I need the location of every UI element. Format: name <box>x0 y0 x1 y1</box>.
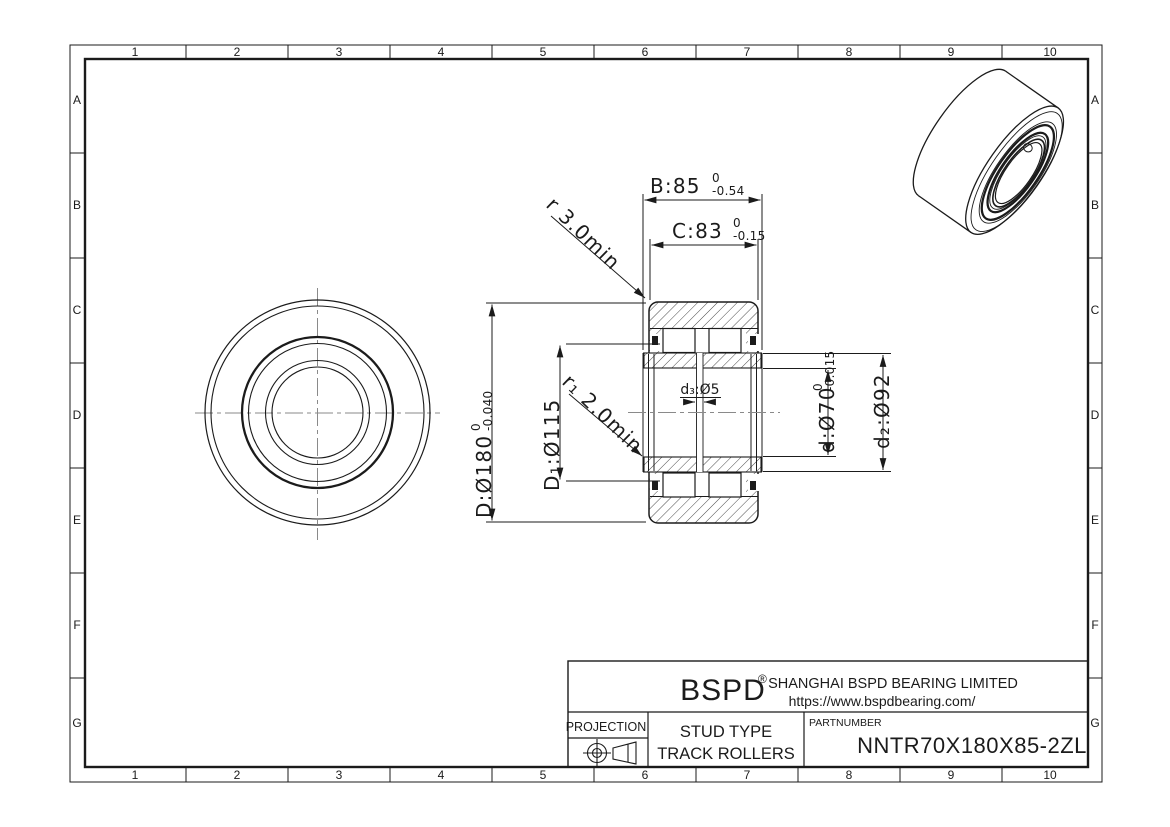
company-name: SHANGHAI BSPD BEARING LIMITED <box>768 676 1018 692</box>
dim-r1: r₁ 2.0min <box>558 369 649 458</box>
front-view-centerlines <box>195 288 440 540</box>
grid-row-left: A <box>73 93 81 107</box>
grid-col-top: 10 <box>1043 45 1057 59</box>
grid-row-left: F <box>73 618 80 632</box>
grid-row-right: F <box>1091 618 1098 632</box>
grid-row-right: D <box>1091 408 1100 422</box>
grid-col-bottom: 5 <box>540 768 547 782</box>
grid-col-top: 6 <box>642 45 649 59</box>
grid-row-left: B <box>73 198 81 212</box>
grid-col-bottom: 2 <box>234 768 241 782</box>
grid-col-top: 9 <box>948 45 955 59</box>
grid-col-top: 5 <box>540 45 547 59</box>
product-type-line2: TRACK ROLLERS <box>657 745 795 763</box>
company-url: https://www.bspdbearing.com/ <box>789 693 976 709</box>
dim-D1: D₁:Ø115 <box>540 399 564 491</box>
grid-col-bottom: 9 <box>948 768 955 782</box>
grid-col-bottom: 3 <box>336 768 343 782</box>
grid-col-bottom: 6 <box>642 768 649 782</box>
grid-row-right: B <box>1091 198 1099 212</box>
grid-row-right: E <box>1091 513 1099 527</box>
dim-D-tol-bottom: -0.040 <box>481 391 495 431</box>
dim-d3: d₃:Ø5 <box>680 382 719 398</box>
grid-col-bottom: 7 <box>744 768 751 782</box>
grid-row-right: A <box>1091 93 1099 107</box>
projection-symbol-icon <box>583 739 636 767</box>
grid-row-left: C <box>73 303 82 317</box>
partnumber-label: PARTNUMBER <box>809 717 882 729</box>
dim-d-tol-bottom: -0.015 <box>823 351 837 391</box>
grid-col-bottom: 4 <box>438 768 445 782</box>
registered-mark: ® <box>758 672 767 686</box>
grid-col-top: 7 <box>744 45 751 59</box>
grid-row-right: G <box>1090 716 1099 730</box>
grid-col-top: 1 <box>132 45 139 59</box>
title-block: BSPD ® SHANGHAI BSPD BEARING LIMITED htt… <box>566 661 1088 767</box>
grid-col-bottom: 10 <box>1043 768 1057 782</box>
grid-col-top: 3 <box>336 45 343 59</box>
section-view <box>628 302 780 523</box>
dim-D: D:Ø180 <box>472 435 496 518</box>
dim-d2: d₂:Ø92 <box>870 373 894 449</box>
front-view <box>195 288 440 540</box>
projection-label: PROJECTION <box>566 720 647 734</box>
grid-col-top: 2 <box>234 45 241 59</box>
dim-C-tol-bottom: -0.15 <box>733 229 766 243</box>
dim-C-tol-top: 0 <box>733 216 741 230</box>
drawing-sheet: 1 2 3 4 5 6 7 8 9 10 1 2 3 4 5 6 7 8 9 1… <box>0 0 1170 827</box>
grid-row-left: D <box>73 408 82 422</box>
dim-B-tol-bottom: -0.54 <box>712 184 745 198</box>
dim-r: r 3.0min <box>542 192 626 274</box>
grid-row-left: E <box>73 513 81 527</box>
company-logo: BSPD <box>680 674 766 707</box>
grid-col-top: 8 <box>846 45 853 59</box>
iso-view <box>896 56 1080 248</box>
product-type-line1: STUD TYPE <box>680 723 772 741</box>
grid-row-left: G <box>72 716 81 730</box>
grid-col-top: 4 <box>438 45 445 59</box>
dim-C: C:83 <box>672 219 723 243</box>
grid-row-right: C <box>1091 303 1100 317</box>
dim-B: B:85 <box>650 174 701 198</box>
cad-drawing: 1 2 3 4 5 6 7 8 9 10 1 2 3 4 5 6 7 8 9 1… <box>0 0 1170 827</box>
grid-col-bottom: 8 <box>846 768 853 782</box>
grid-col-bottom: 1 <box>132 768 139 782</box>
partnumber-value: NNTR70X180X85-2ZL <box>857 733 1087 758</box>
dim-B-tol-top: 0 <box>712 171 720 185</box>
dim-d: d:Ø70 <box>815 386 839 453</box>
